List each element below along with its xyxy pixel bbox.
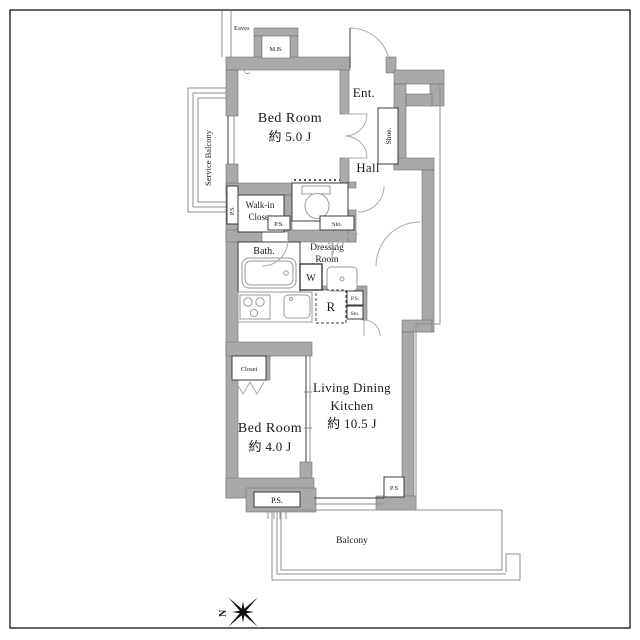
image-border-frame bbox=[10, 10, 630, 628]
bath-label: Bath. bbox=[253, 246, 274, 257]
kitchen-nook-door bbox=[364, 320, 380, 336]
ps-side-label: P.S. bbox=[230, 205, 236, 215]
walkin-label-1: Walk-in bbox=[246, 200, 275, 210]
balcony-label: Balcony bbox=[336, 536, 368, 546]
toilet-room bbox=[292, 183, 384, 221]
bedroom1-name: Bed Room bbox=[258, 111, 322, 126]
closet-label: Closet bbox=[241, 366, 258, 373]
bedroom1-double-door bbox=[345, 114, 367, 158]
ldk-area: 約 10.5 J bbox=[327, 416, 377, 431]
storage-upper-label: Sto. bbox=[332, 221, 343, 228]
compass-north-label: N bbox=[218, 609, 229, 617]
storage-kitchen-label: Sto. bbox=[351, 311, 360, 317]
washer-label: W bbox=[306, 273, 316, 284]
ps-bottom-right-label: P.S bbox=[390, 485, 399, 492]
dressing-label-1: Dressing bbox=[310, 243, 344, 253]
hall-label: Hall bbox=[356, 160, 380, 175]
shoe-label: Shoe. bbox=[384, 127, 393, 144]
bedroom2-area: 約 4.0 J bbox=[249, 439, 292, 454]
dressing-room: Dressing Room W bbox=[300, 234, 358, 291]
ps-kitchen-label: P.S. bbox=[351, 296, 360, 302]
floor-plan-image: Eaves (下り) Service Balcony bbox=[0, 0, 640, 640]
bedroom1-window bbox=[228, 116, 234, 164]
closet-bifold-door bbox=[236, 382, 264, 394]
bedroom2-sliding-partition bbox=[304, 356, 312, 462]
compass: N bbox=[218, 597, 258, 627]
ldk-balcony-window bbox=[314, 498, 384, 504]
ps-walkin-label: P.S. bbox=[274, 221, 284, 228]
bedroom1-area: 約 5.0 J bbox=[269, 129, 312, 144]
balcony: Balcony bbox=[272, 510, 520, 580]
ps-bottom-left-label: P.S. bbox=[271, 496, 283, 505]
kitchen-sink bbox=[284, 295, 310, 318]
meter-box-label: M.B. bbox=[269, 46, 283, 53]
front-door bbox=[350, 28, 390, 68]
service-balcony-label: Service Balcony bbox=[203, 129, 213, 186]
entrance-label: Ent. bbox=[353, 85, 376, 100]
ldk-name-1: Living Dining bbox=[313, 380, 391, 395]
bath-room: Bath. bbox=[238, 240, 300, 292]
kitchen-counter bbox=[238, 292, 312, 322]
hall-ldk-door bbox=[376, 222, 420, 266]
bedroom2-name: Bed Room bbox=[238, 421, 302, 436]
eaves-label: Eaves bbox=[234, 25, 250, 32]
service-balcony: Service Balcony bbox=[188, 88, 230, 212]
ldk-name-2: Kitchen bbox=[330, 398, 373, 413]
compass-star bbox=[228, 597, 258, 627]
ps-side-box bbox=[227, 186, 238, 224]
floor-plan-canvas: Eaves (下り) Service Balcony bbox=[0, 0, 640, 640]
fridge-label: R bbox=[327, 299, 336, 314]
